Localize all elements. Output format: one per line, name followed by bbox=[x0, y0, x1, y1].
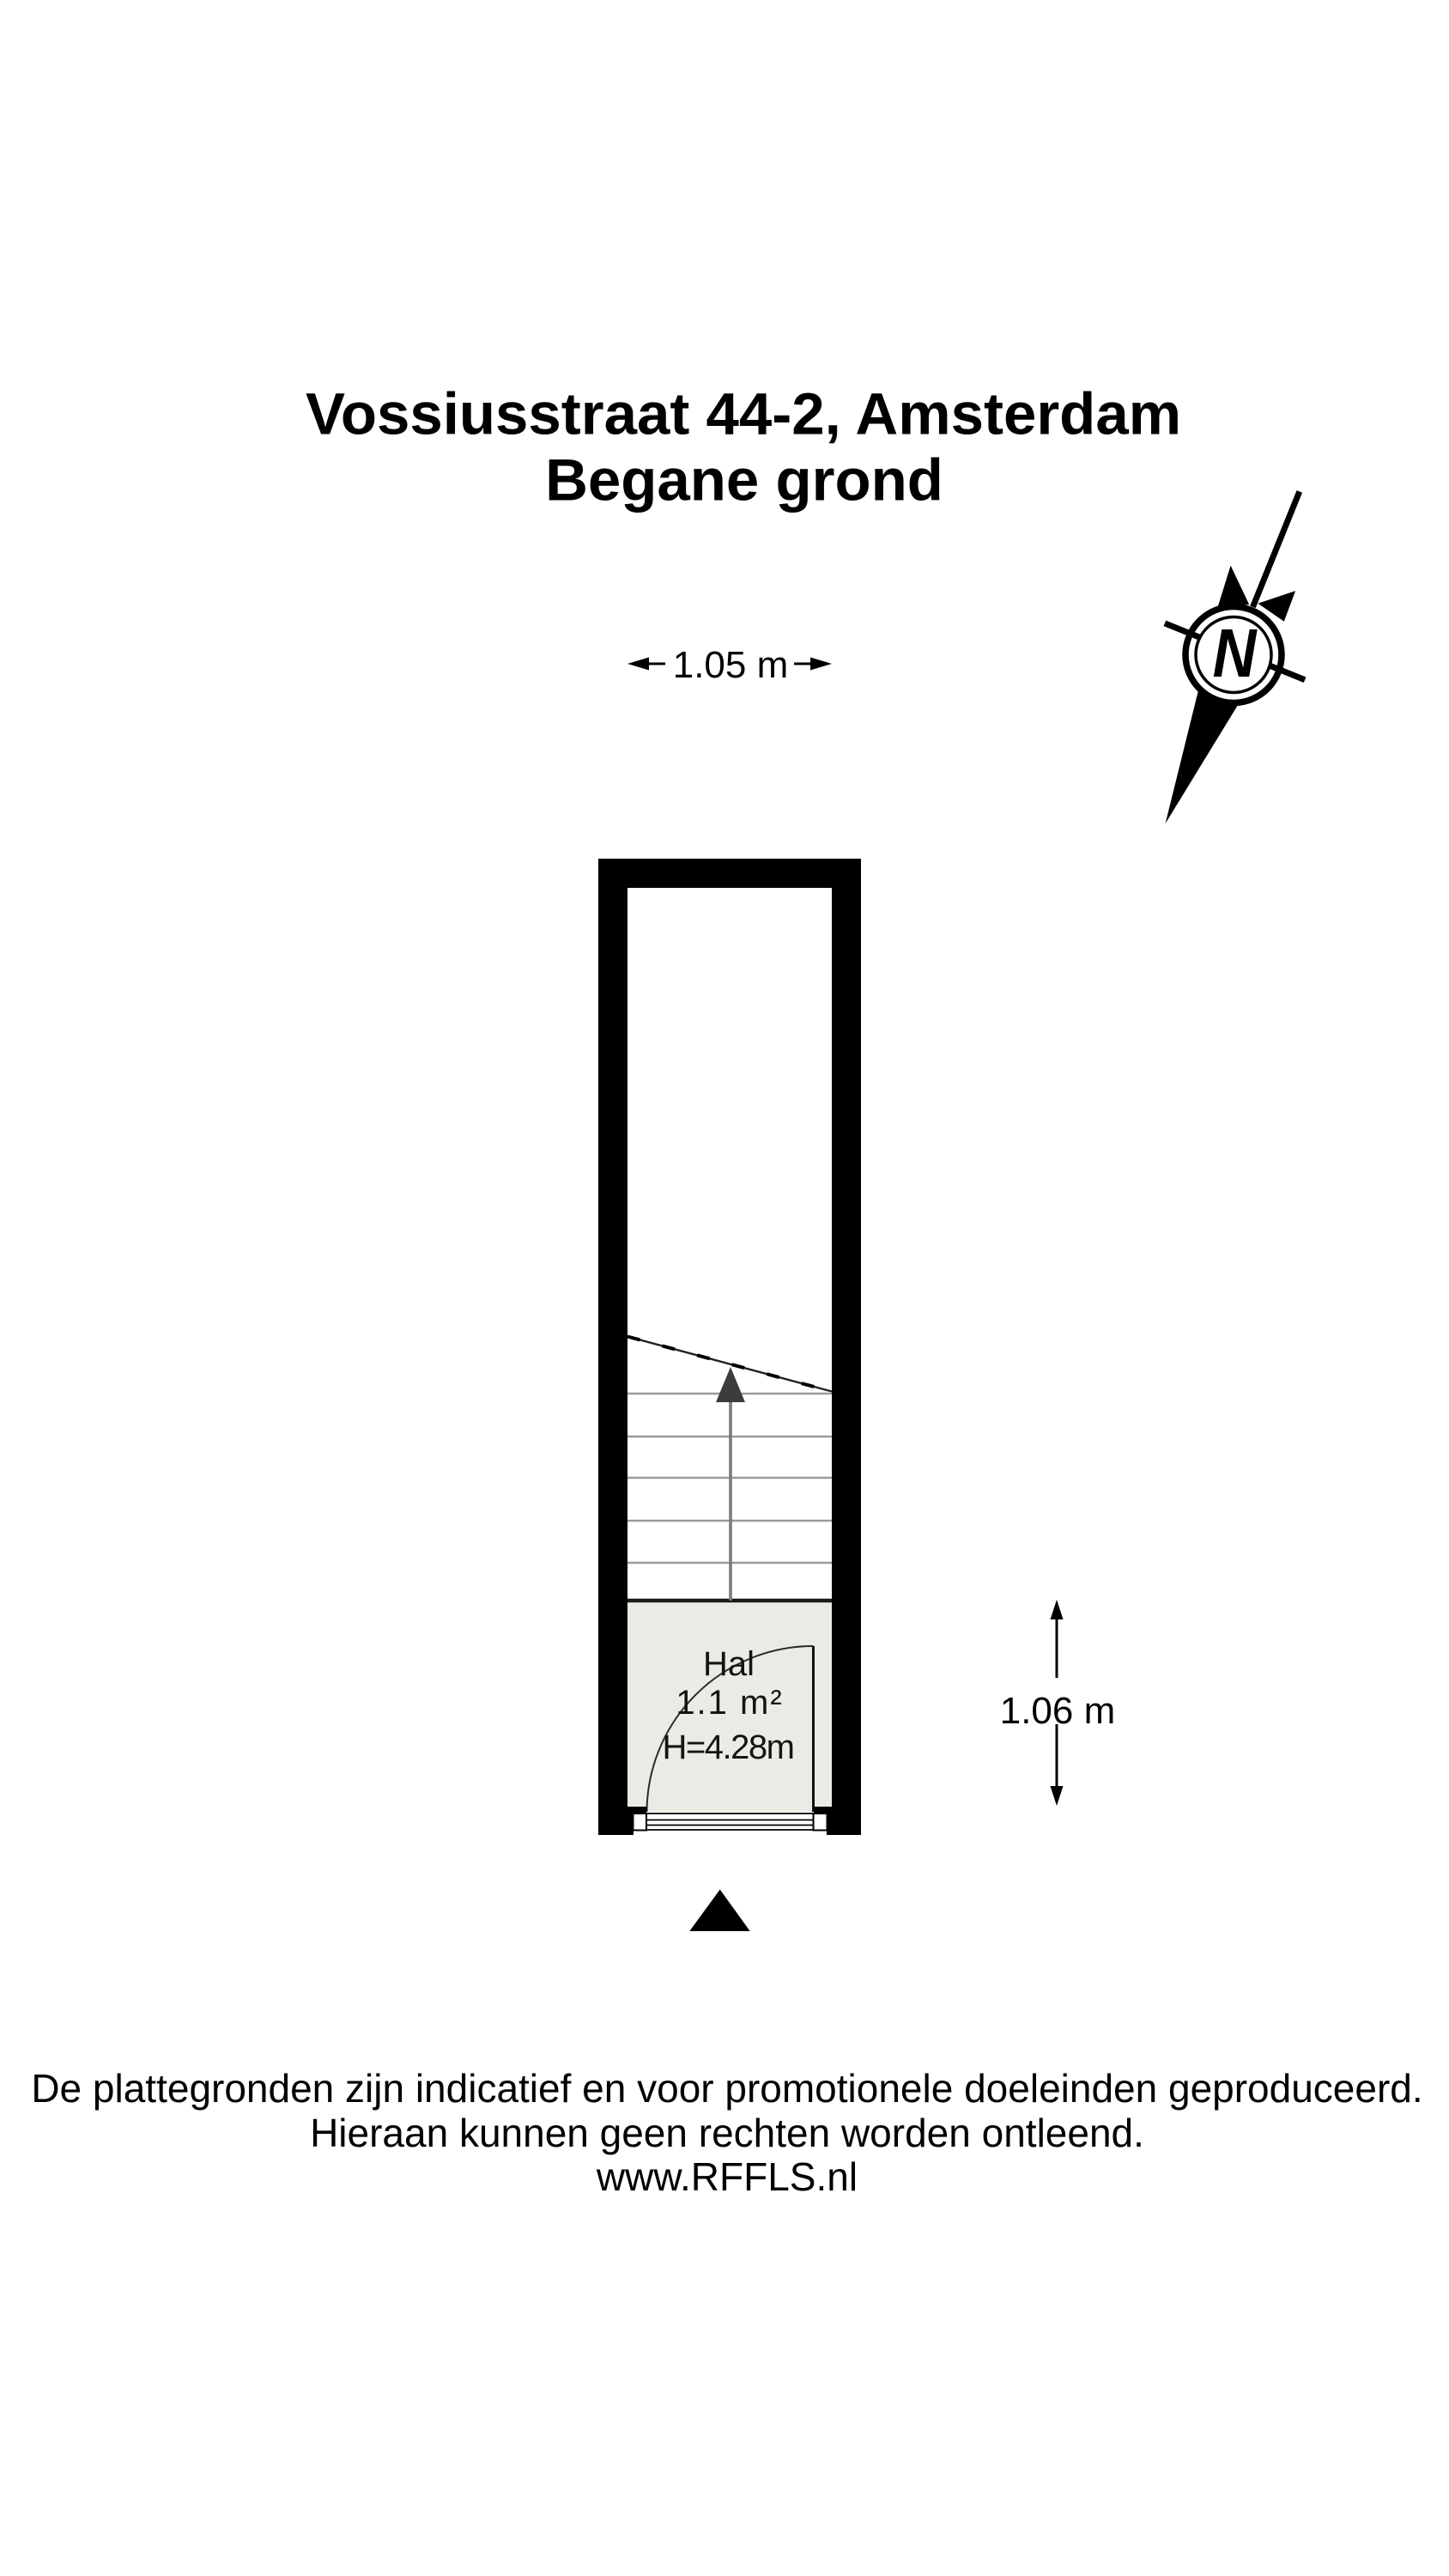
svg-text:N: N bbox=[1213, 615, 1258, 691]
svg-text:Hal: Hal bbox=[703, 1645, 755, 1683]
svg-text:1.1 m²: 1.1 m² bbox=[676, 1684, 783, 1722]
svg-text:H=4.28m: H=4.28m bbox=[663, 1728, 794, 1766]
svg-text:Hieraan kunnen geen rechten wo: Hieraan kunnen geen rechten worden ontle… bbox=[310, 2111, 1144, 2155]
svg-text:1.06 m: 1.06 m bbox=[1000, 1690, 1116, 1732]
svg-text:Begane grond: Begane grond bbox=[545, 447, 943, 513]
svg-text:www.RFFLS.nl: www.RFFLS.nl bbox=[596, 2154, 858, 2199]
svg-text:De plattegronden zijn indicati: De plattegronden zijn indicatief en voor… bbox=[31, 2066, 1422, 2111]
svg-text:Vossiusstraat 44-2, Amsterdam: Vossiusstraat 44-2, Amsterdam bbox=[306, 381, 1181, 447]
svg-text:1.05 m: 1.05 m bbox=[673, 644, 789, 686]
